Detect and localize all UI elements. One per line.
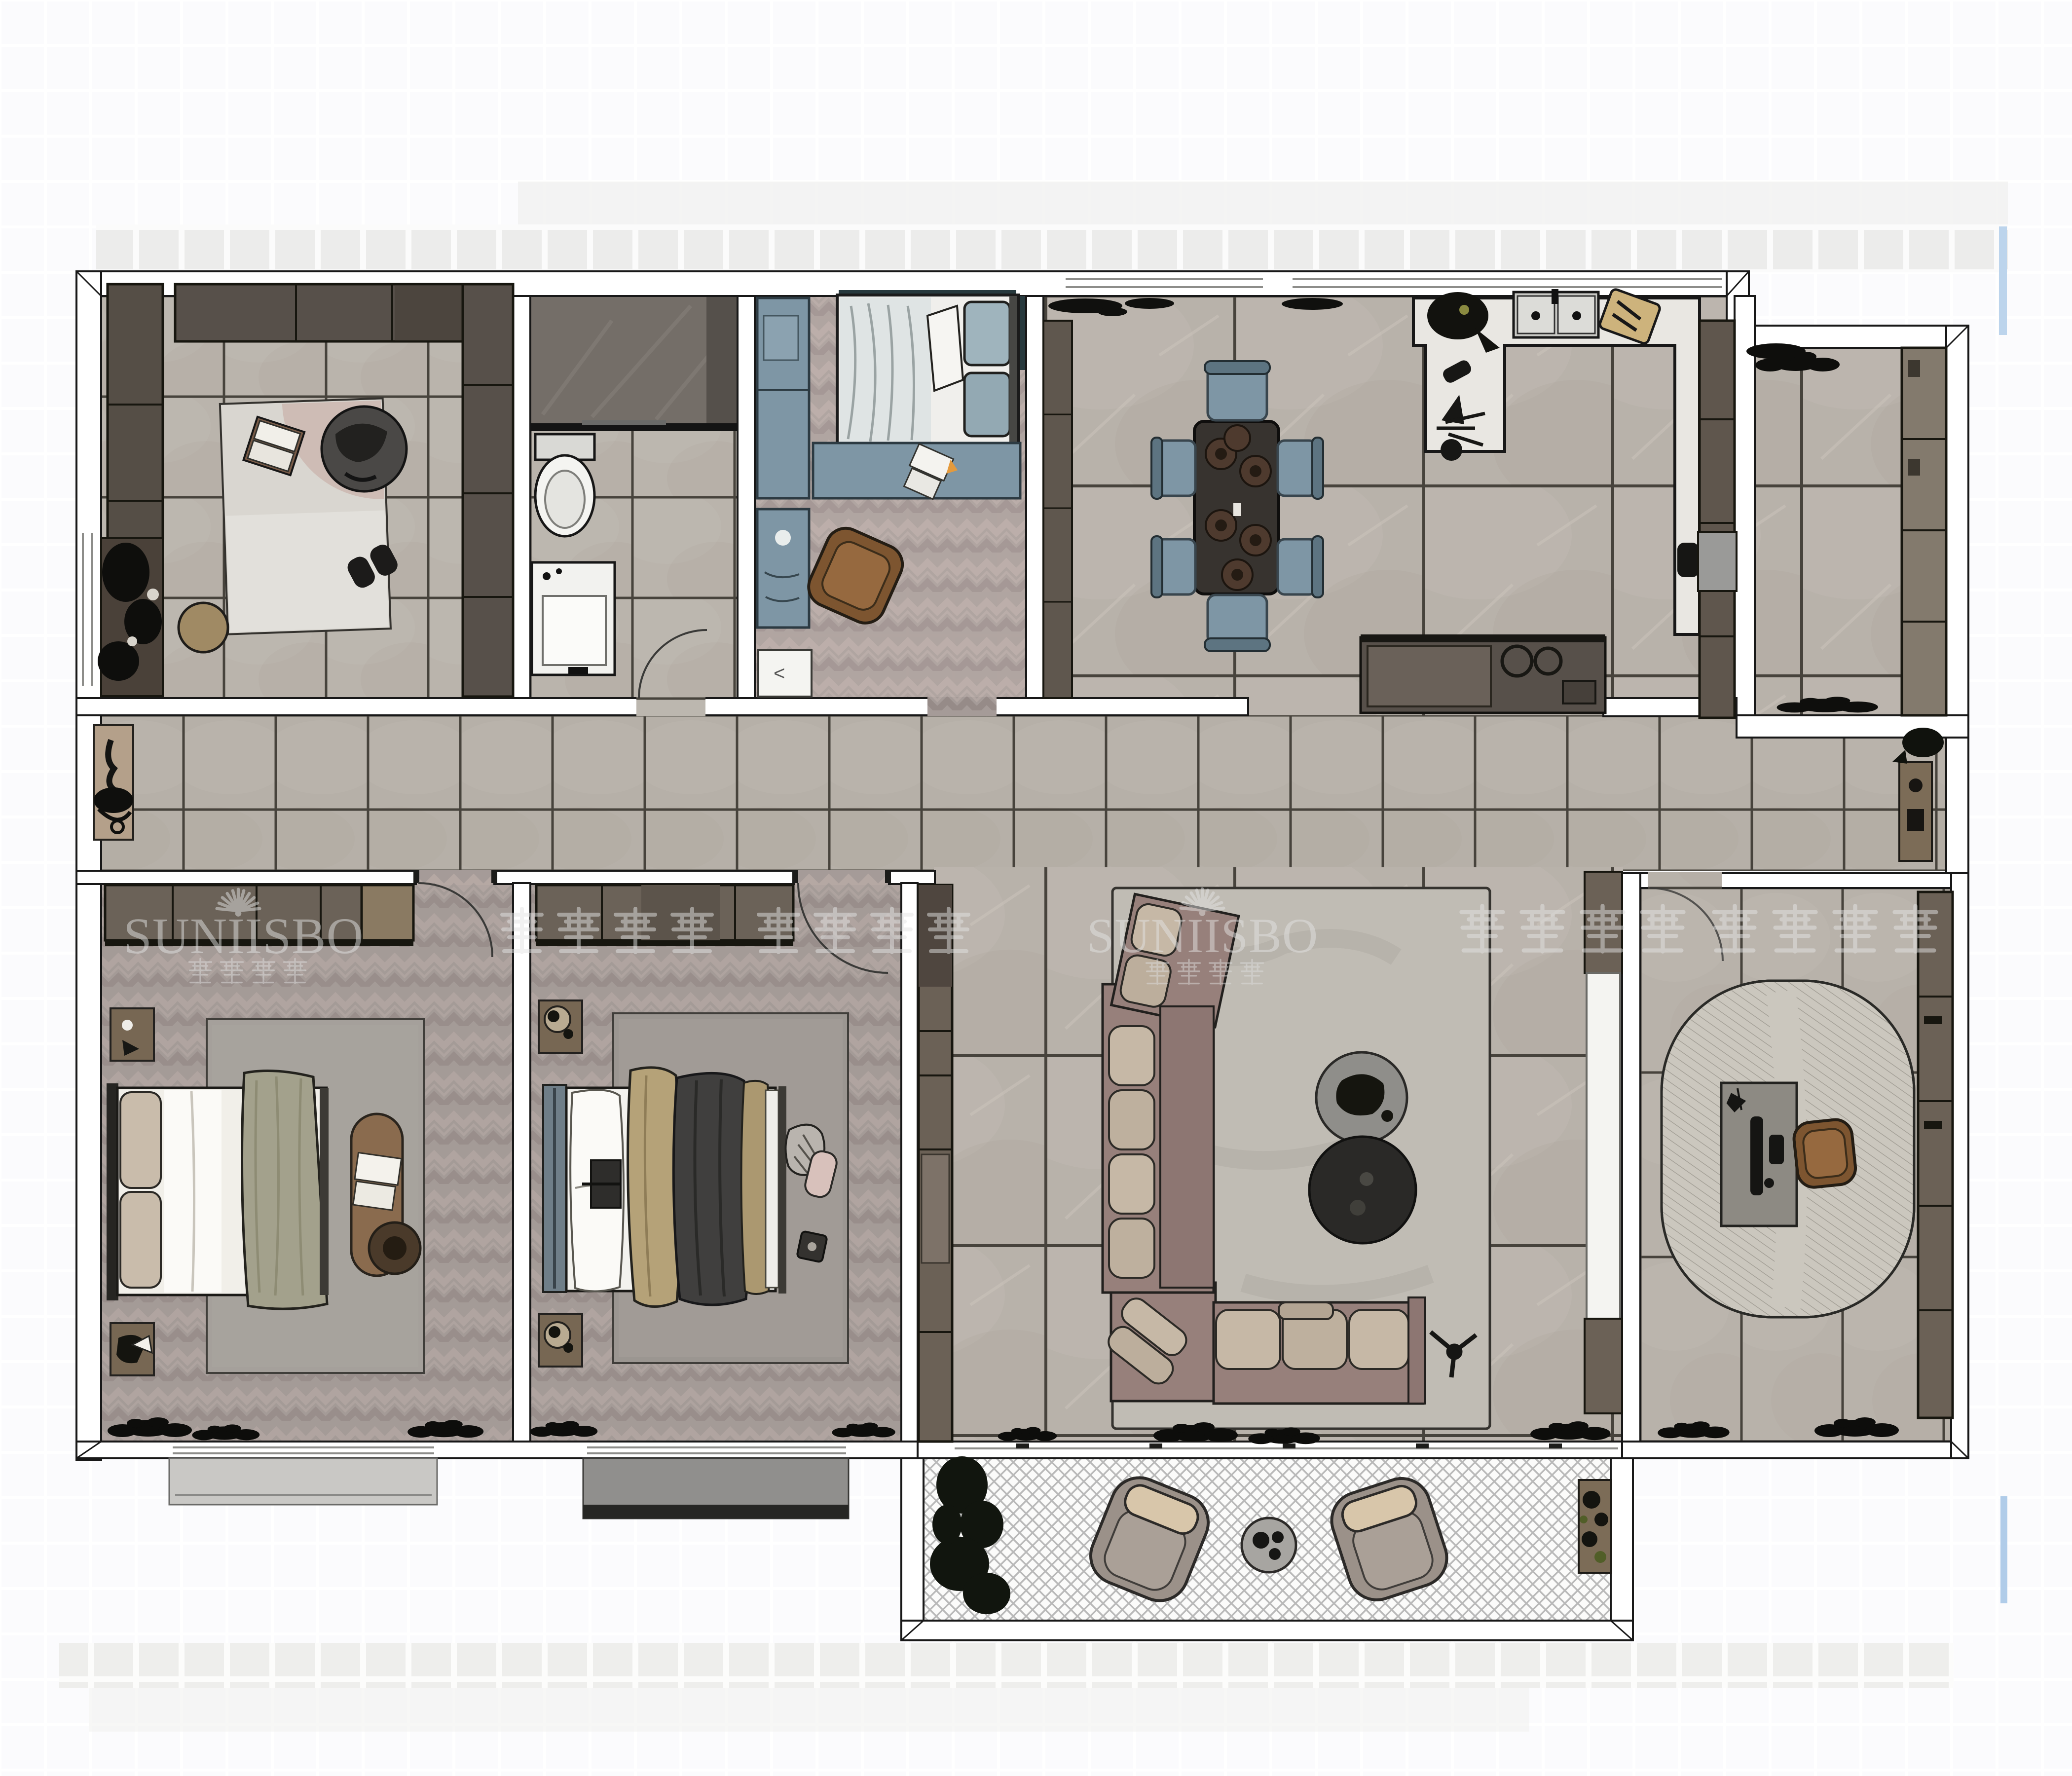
- svg-text:SUNIISBO: SUNIISBO: [1087, 908, 1318, 963]
- svg-text:SUNIISBO: SUNIISBO: [123, 908, 364, 964]
- svg-text:<: <: [774, 663, 785, 684]
